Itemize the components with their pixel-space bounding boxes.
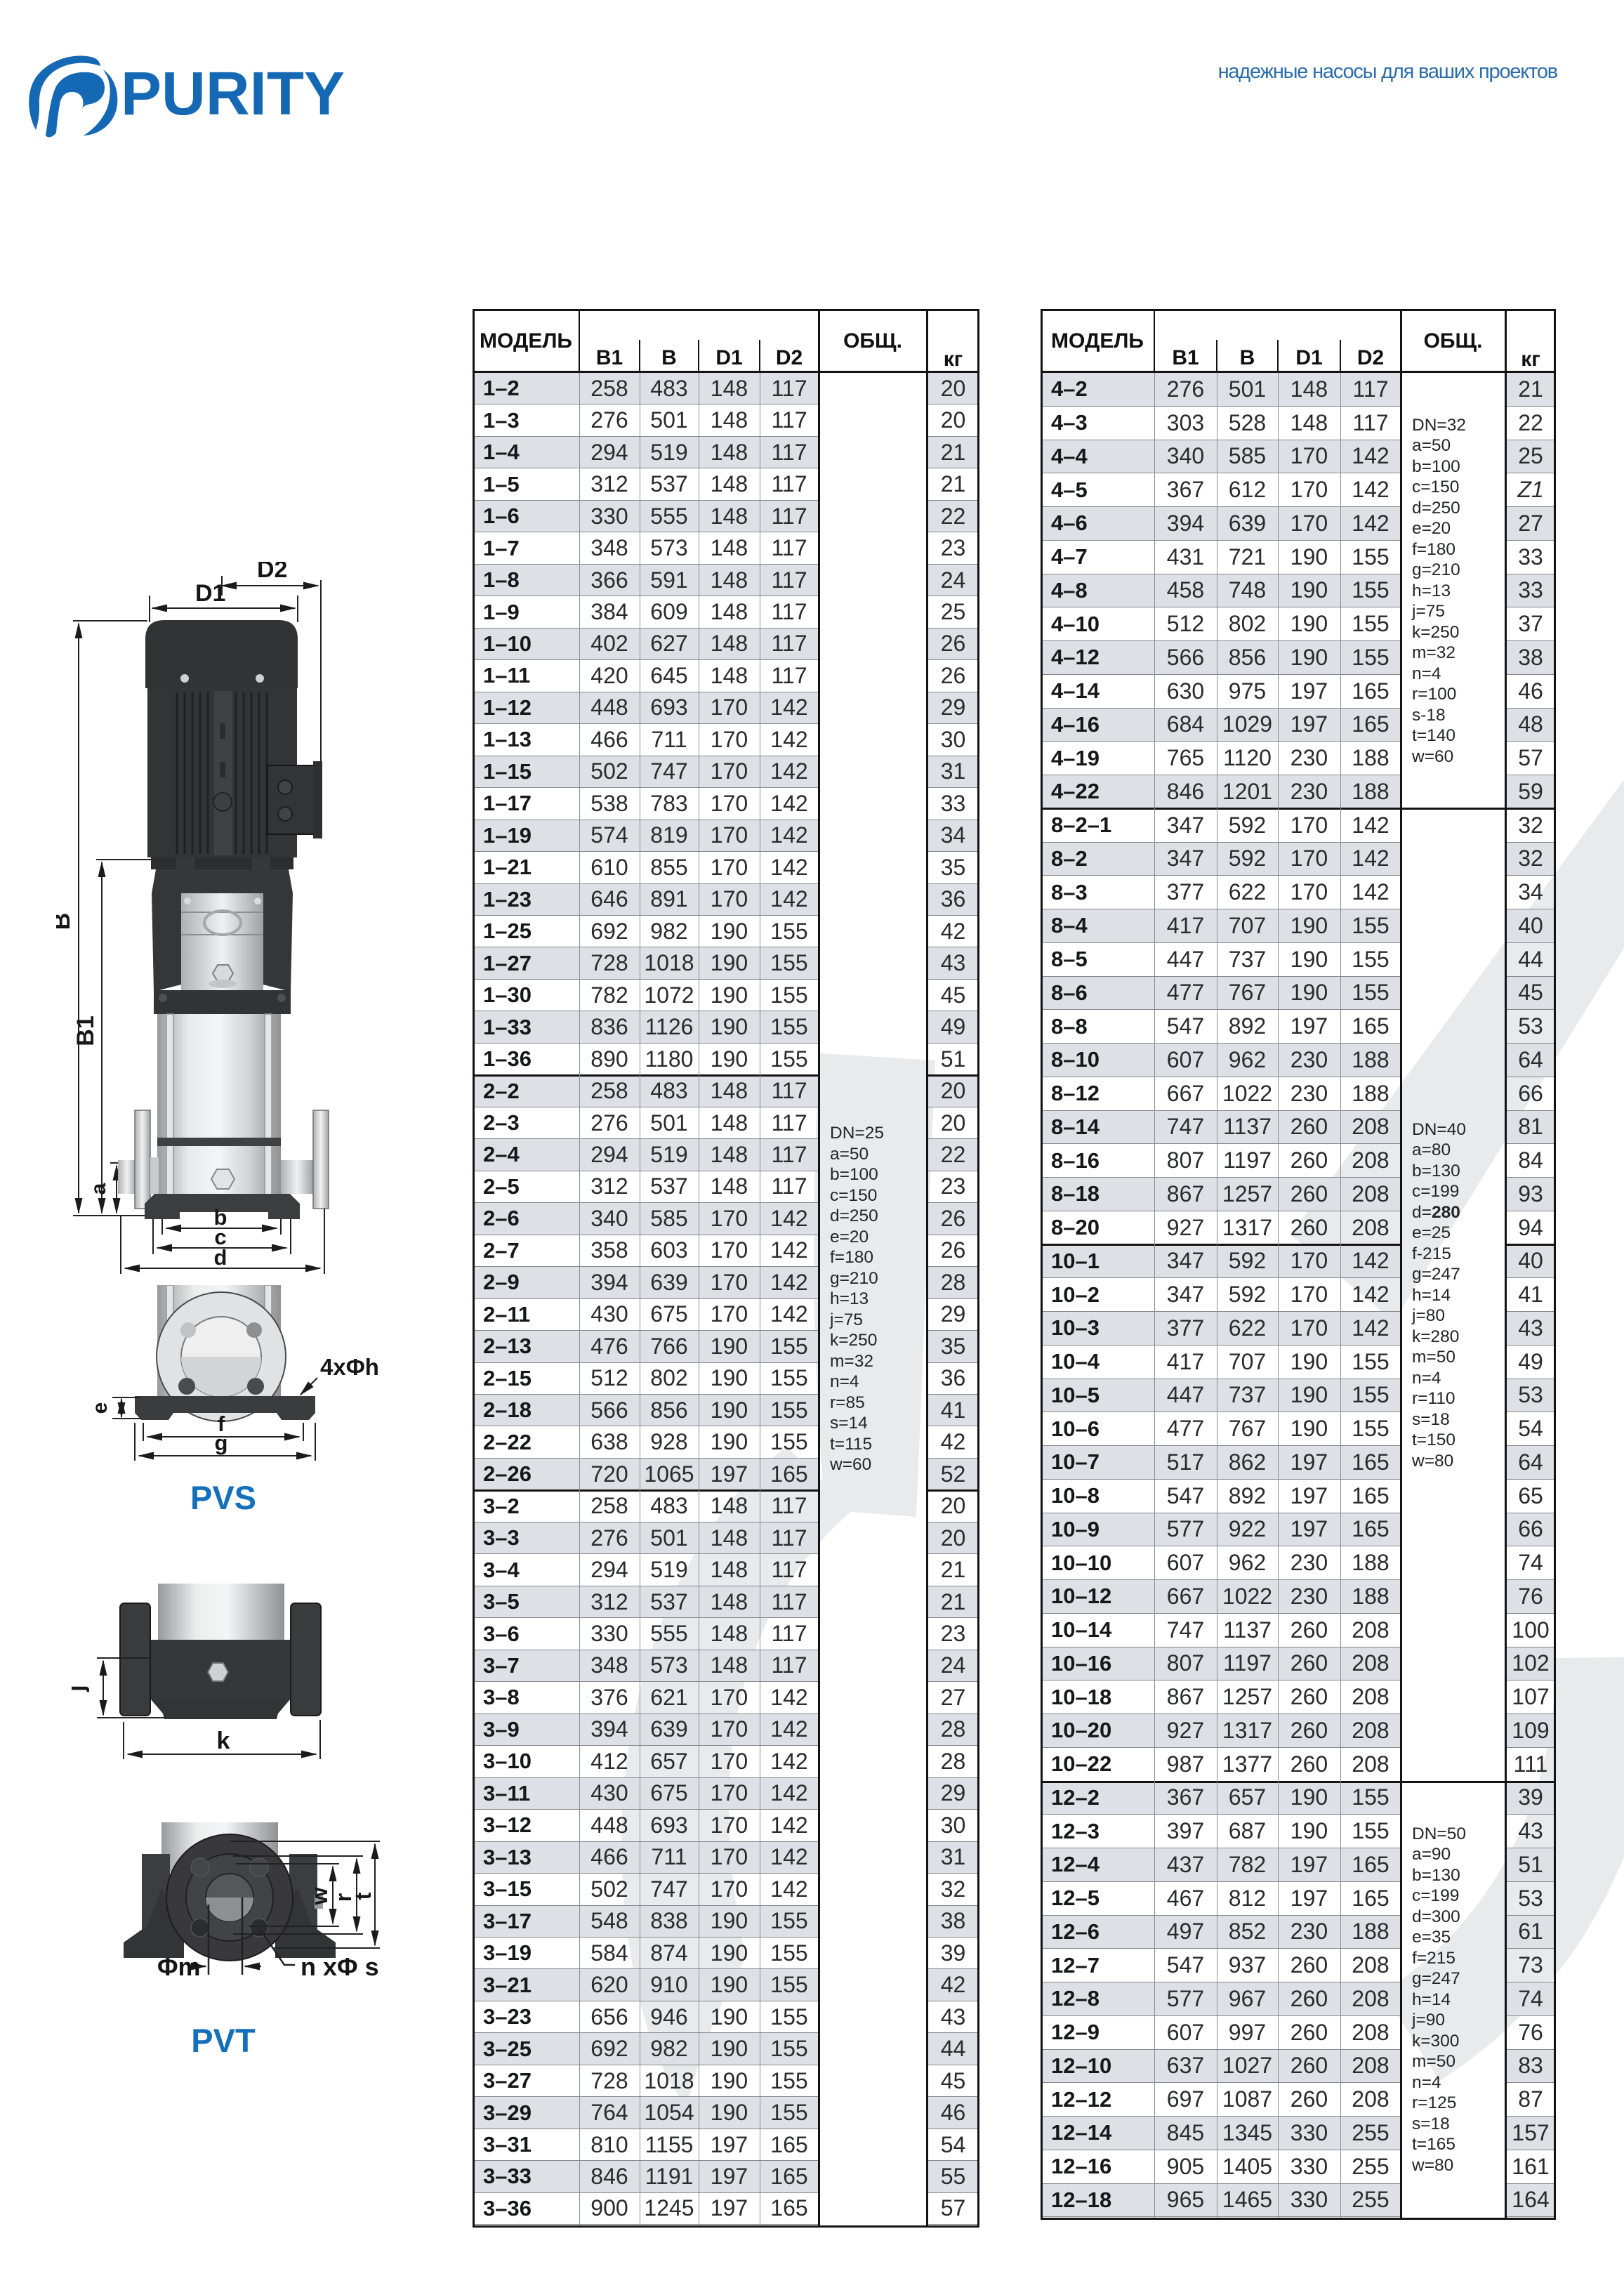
svg-text:g: g — [215, 1430, 228, 1455]
svg-text:e: e — [91, 1402, 112, 1414]
svg-text:Φm: Φm — [157, 1952, 201, 1981]
svg-text:B1: B1 — [72, 1015, 99, 1046]
svg-text:w: w — [307, 1887, 332, 1905]
svg-text:n xΦ s: n xΦ s — [301, 1952, 379, 1981]
svg-text:t: t — [350, 1892, 376, 1900]
svg-text:4xΦh: 4xΦh — [320, 1354, 379, 1380]
svg-text:d: d — [214, 1245, 227, 1270]
svg-text:B: B — [56, 913, 75, 930]
svg-text:a: a — [87, 1183, 110, 1195]
svg-text:k: k — [217, 1728, 230, 1754]
svg-text:D2: D2 — [257, 562, 287, 583]
svg-text:j: j — [70, 1685, 90, 1692]
svg-text:D1: D1 — [195, 580, 225, 607]
